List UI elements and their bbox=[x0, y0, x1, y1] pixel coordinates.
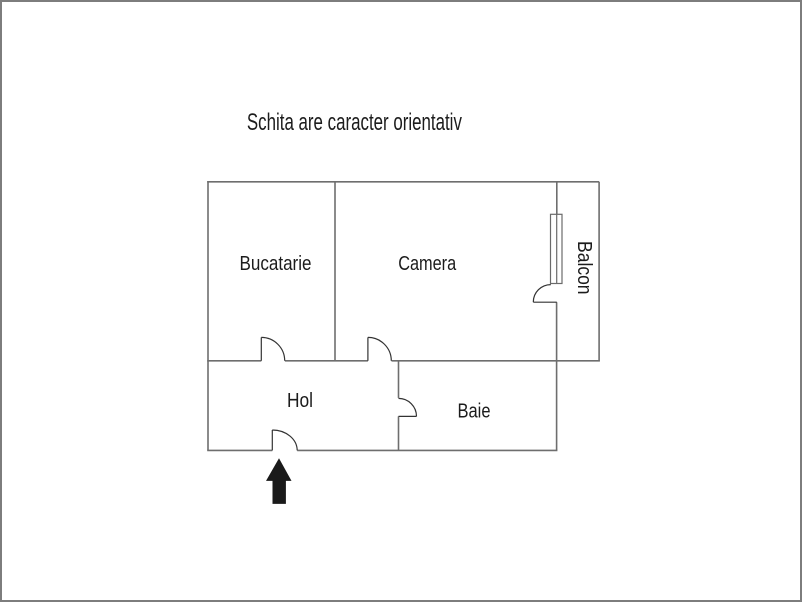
svg-text:Balcon: Balcon bbox=[573, 241, 595, 295]
svg-text:Hol: Hol bbox=[287, 390, 313, 412]
svg-text:Bucatarie: Bucatarie bbox=[240, 253, 312, 275]
svg-text:Camera: Camera bbox=[398, 253, 457, 275]
svg-text:Baie: Baie bbox=[458, 400, 491, 422]
svg-text:Schita are caracter orientativ: Schita are caracter orientativ bbox=[247, 109, 462, 136]
